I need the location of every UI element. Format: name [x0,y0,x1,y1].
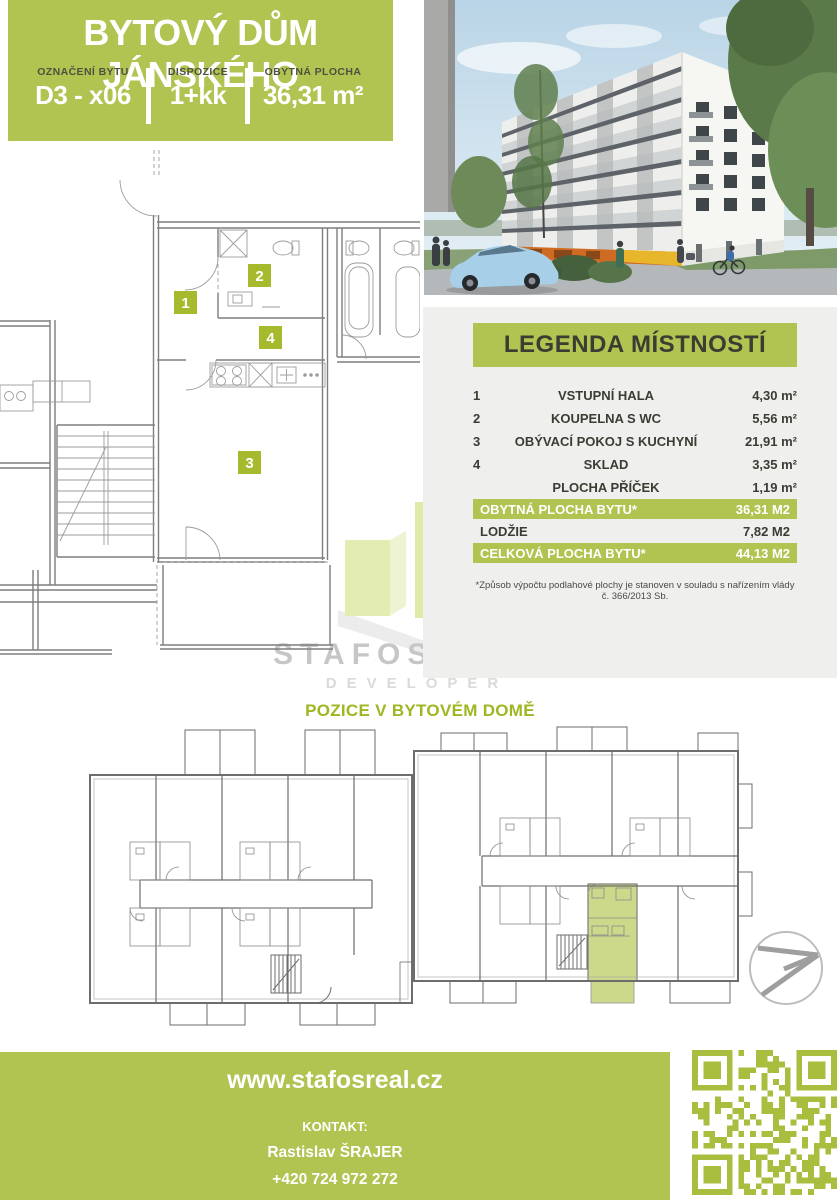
qr-code [692,1050,837,1195]
north-arrow-icon [750,932,822,1004]
flyer-page: BYTOVÝ DŮM JÁNSKÉHO OZNAČENÍ BYTU D3 - x… [0,0,837,1200]
legend-row-name: SKLAD [489,457,723,472]
legend-summary-living-area: OBYTNÁ PLOCHA BYTU* 36,31 M2 [473,499,797,519]
legend-row-name: OBÝVACÍ POKOJ S KUCHYNÍ [489,434,723,449]
building-photo [424,0,837,295]
field-layout: DISPOZICE 1+kk [155,66,241,111]
legend-rows: 1 VSTUPNÍ HALA 4,30 m² 2 KOUPELNA S WC 5… [473,384,797,499]
contact-label: KONTAKT: [0,1119,670,1134]
legend: LEGENDA MÍSTNOSTÍ 1 VSTUPNÍ HALA 4,30 m²… [473,315,797,602]
legend-row-area: 1,19 m² [723,480,797,495]
room-badge-2: 2 [248,264,271,287]
legend-row-num: 2 [473,411,489,426]
field-unit-id-value: D3 - x06 [28,80,138,111]
svg-text:3: 3 [245,455,253,472]
header-divider [245,68,250,124]
legend-row-area: 5,56 m² [723,411,797,426]
legend-row: 1 VSTUPNÍ HALA 4,30 m² [473,384,797,407]
legend-row: PLOCHA PŘÍČEK 1,19 m² [473,476,797,499]
contact-phone: +420 724 972 272 [0,1171,670,1189]
field-area: OBYTNÁ PLOCHA 36,31 m² [253,66,373,111]
legend-row-name: VSTUPNÍ HALA [489,388,723,403]
legend-row-name: KOUPELNA S WC [489,411,723,426]
legend-summary-loggia: LODŽIE 7,82 M2 [473,519,797,543]
field-unit-id: OZNAČENÍ BYTU D3 - x06 [28,66,138,111]
room-badge-3: 3 [238,451,261,474]
legend-footnote: *Způsob výpočtu podlahové plochy je stan… [473,580,797,602]
legend-row-area: 3,35 m² [723,457,797,472]
legend-row: 4 SKLAD 3,35 m² [473,453,797,476]
svg-text:4: 4 [266,330,275,347]
room-badge-4: 4 [259,326,282,349]
building-floorplan [70,722,830,1044]
legend-row-num: 1 [473,388,489,403]
svg-text:1: 1 [181,295,189,312]
legend-row: 2 KOUPELNA S WC 5,56 m² [473,407,797,430]
field-layout-value: 1+kk [155,80,241,111]
legend-row-area: 21,91 m² [723,434,797,449]
legend-row-num: 3 [473,434,489,449]
field-unit-id-label: OZNAČENÍ BYTU [28,66,138,78]
legend-row-name: PLOCHA PŘÍČEK [489,480,723,495]
unit-floorplan: 1 2 4 3 [0,145,420,705]
building-photo-illustration [424,0,837,295]
field-area-label: OBYTNÁ PLOCHA [253,66,373,78]
position-heading: POZICE V BYTOVÉM DOMĚ [120,701,720,721]
field-area-value: 36,31 m² [253,80,373,111]
legend-row-num: 4 [473,457,489,472]
contact-name: Rastislav ŠRAJER [0,1144,670,1162]
footer-bar: www.stafosreal.cz KONTAKT: Rastislav ŠRA… [0,1052,670,1200]
legend-row: 3 OBÝVACÍ POKOJ S KUCHYNÍ 21,91 m² [473,430,797,453]
field-layout-label: DISPOZICE [155,66,241,78]
highlighted-unit [588,884,637,1003]
header-divider [146,68,151,124]
website-link[interactable]: www.stafosreal.cz [0,1066,670,1095]
legend-row-area: 4,30 m² [723,388,797,403]
room-badge-1: 1 [174,291,197,314]
legend-summary-total-area: CELKOVÁ PLOCHA BYTU* 44,13 M2 [473,543,797,563]
legend-title: LEGENDA MÍSTNOSTÍ [473,323,797,367]
svg-text:2: 2 [255,268,263,285]
